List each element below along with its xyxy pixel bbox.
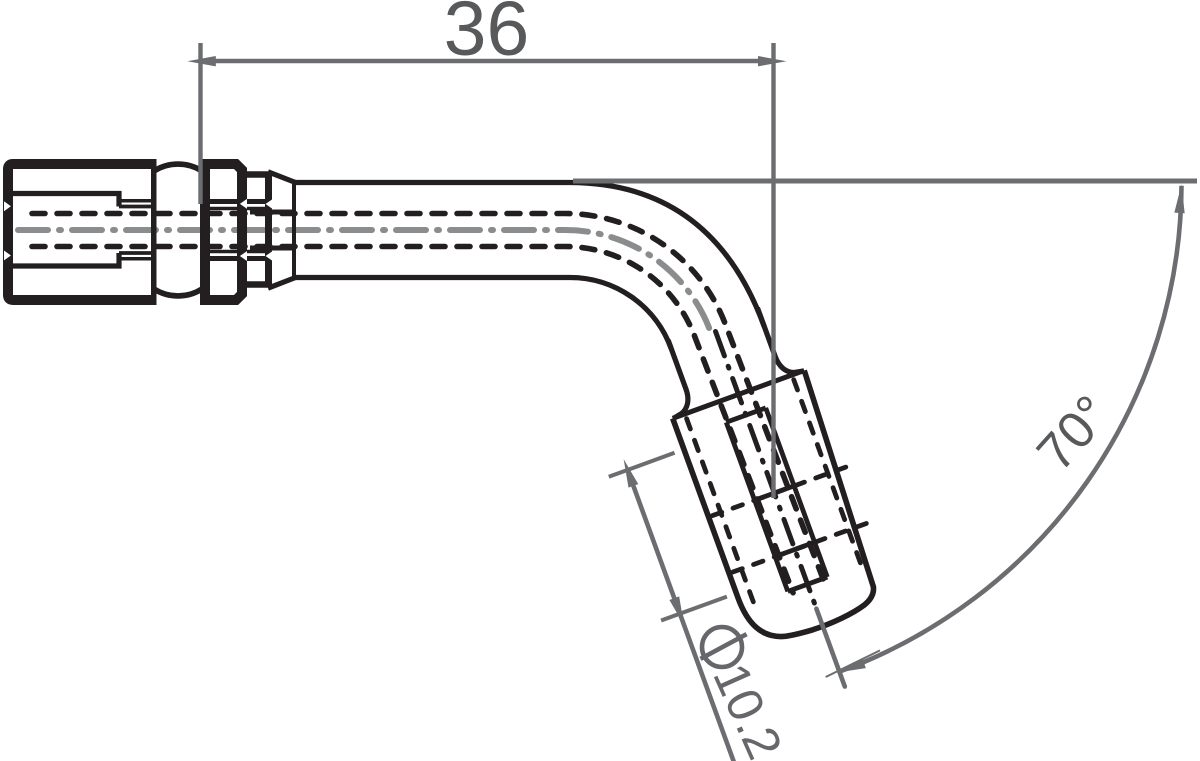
svg-text:36: 36 (444, 0, 530, 72)
